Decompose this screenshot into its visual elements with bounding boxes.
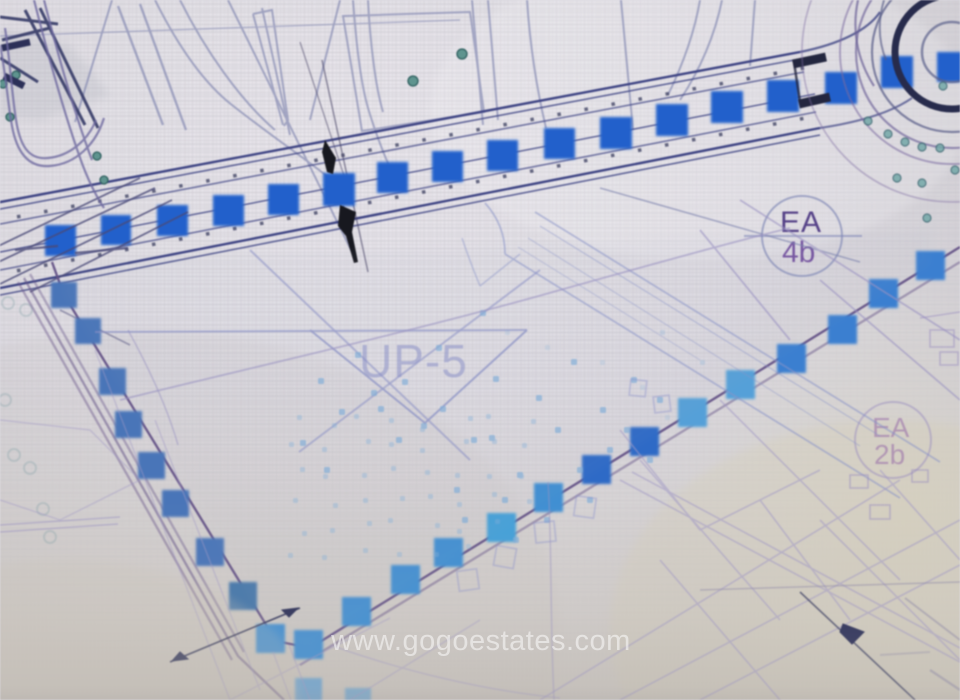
svg-text:www.gogoestates.com: www.gogoestates.com: [330, 625, 631, 657]
